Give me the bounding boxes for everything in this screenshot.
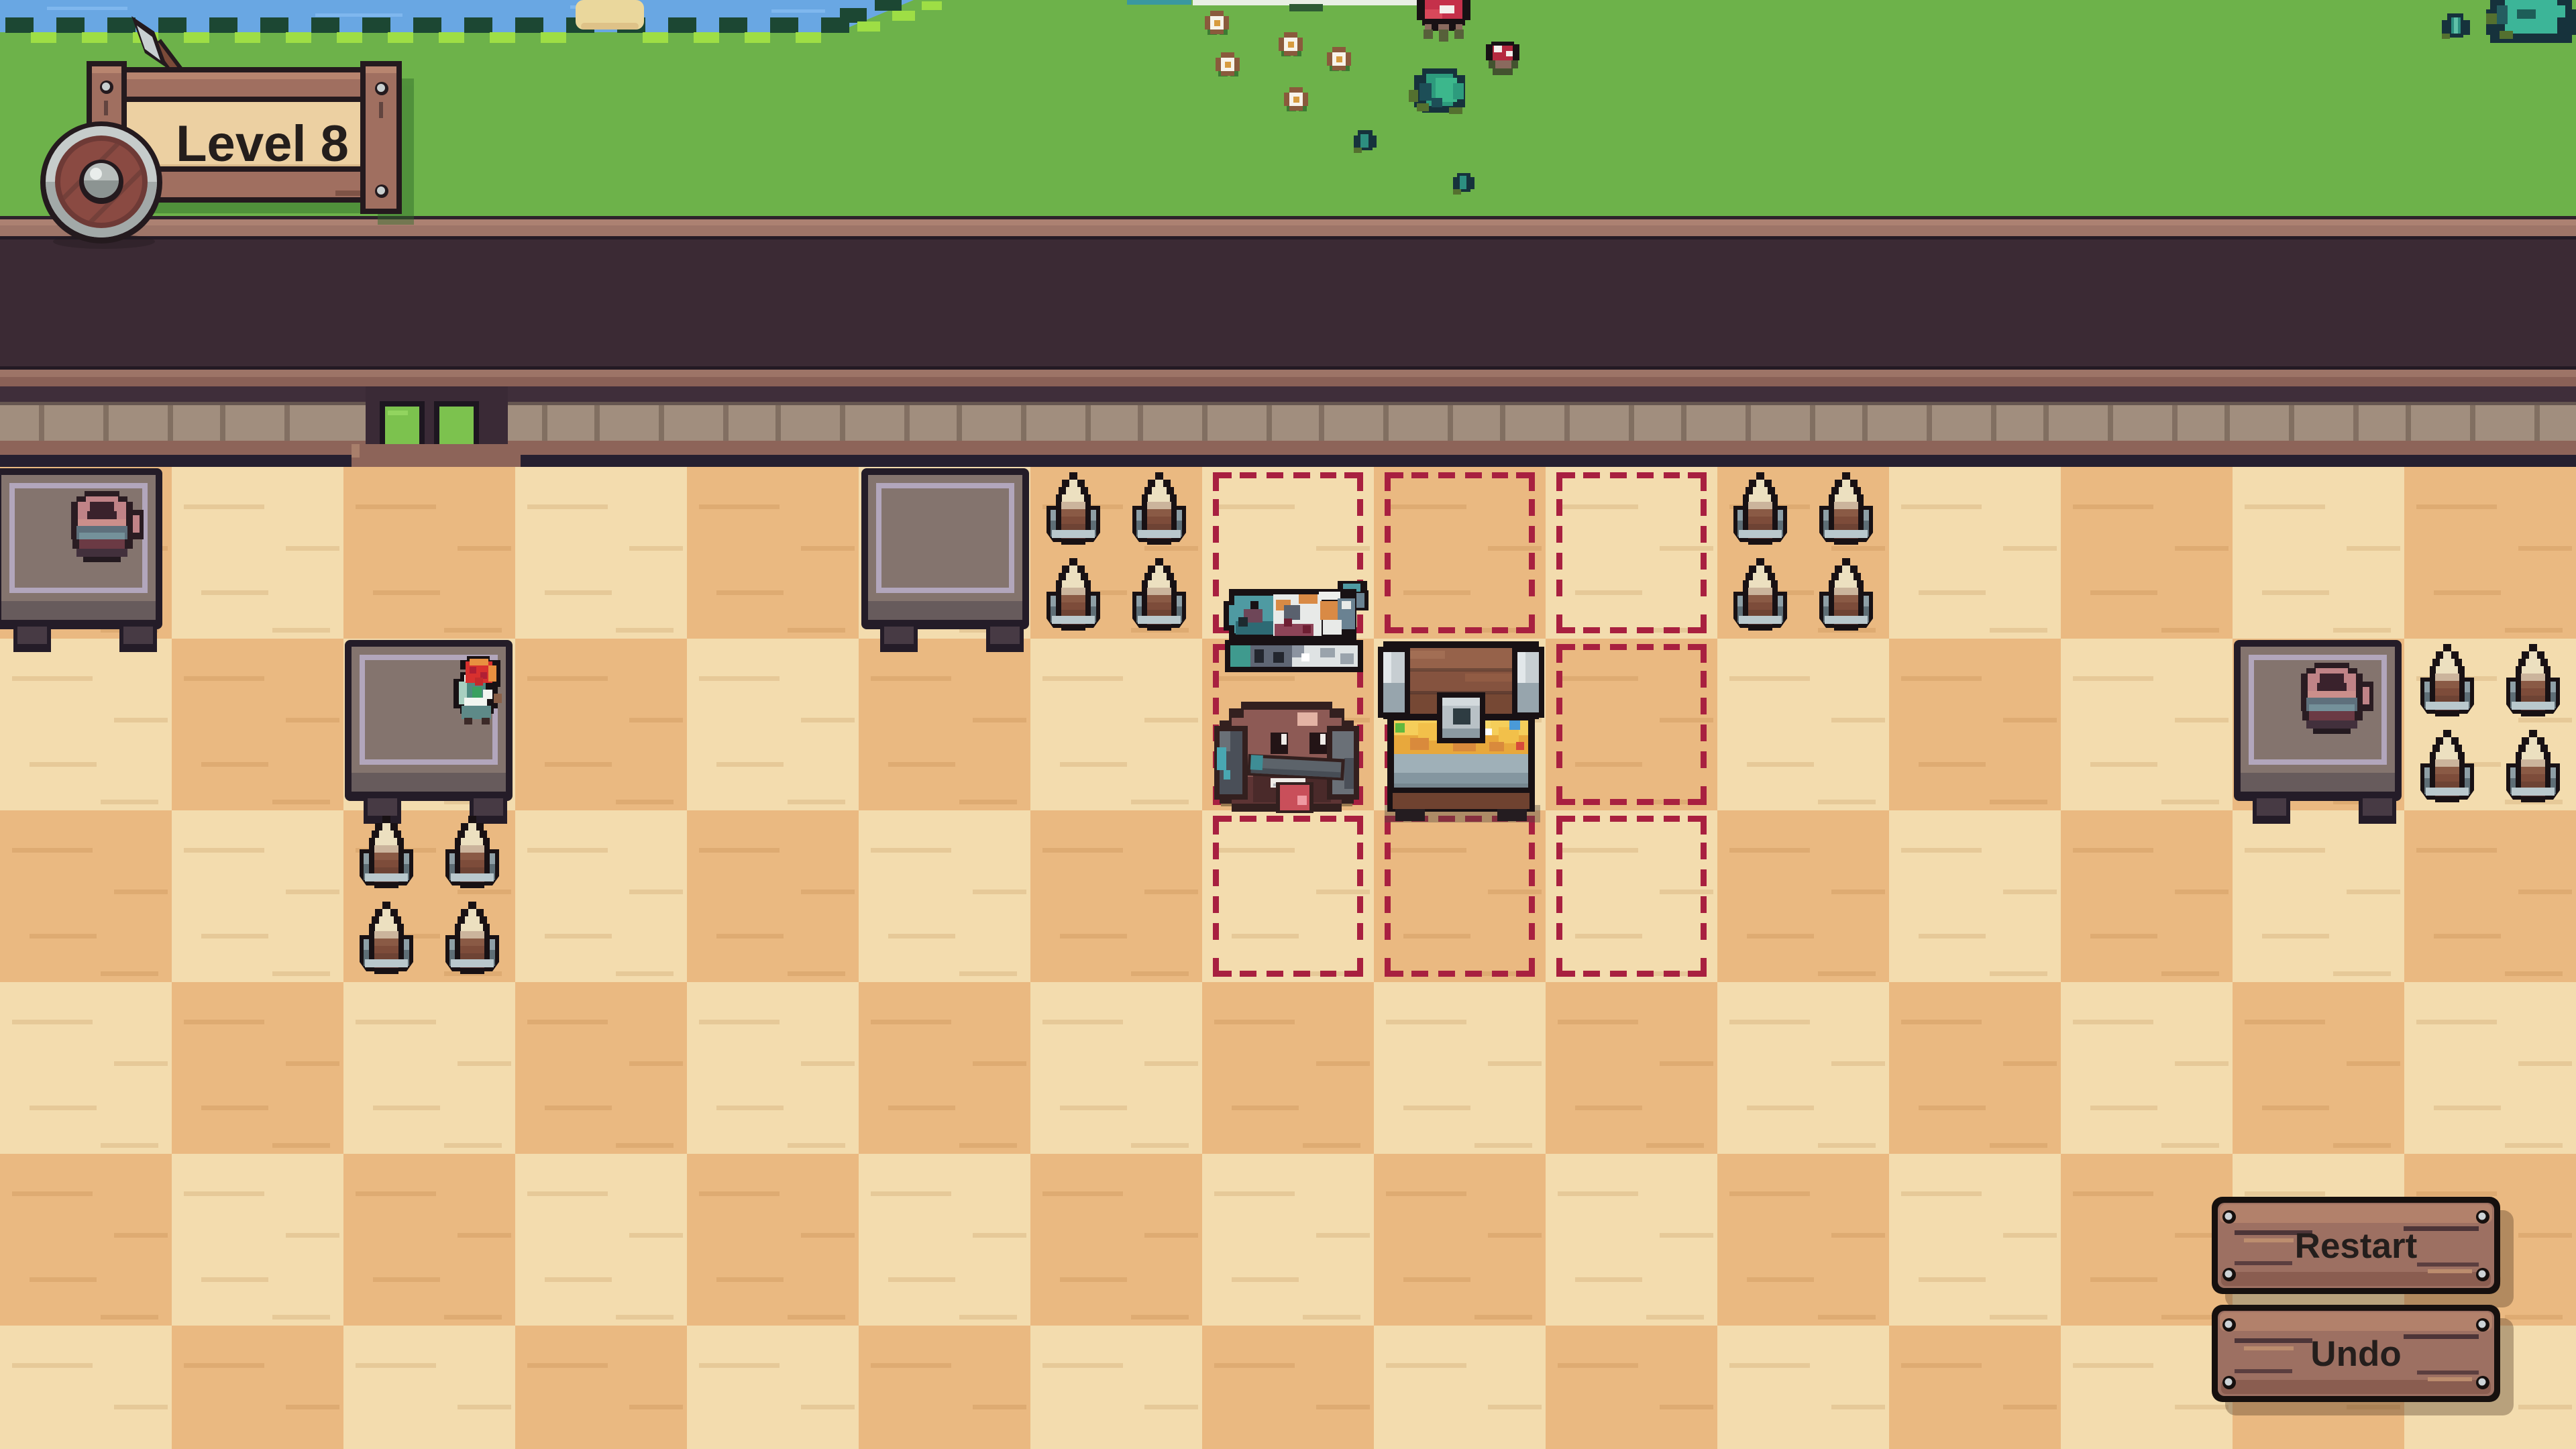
svg-text:Restart: Restart: [2295, 1226, 2418, 1266]
svg-text:Undo: Undo: [2310, 1334, 2401, 1374]
svg-text:Level 8: Level 8: [176, 115, 349, 172]
